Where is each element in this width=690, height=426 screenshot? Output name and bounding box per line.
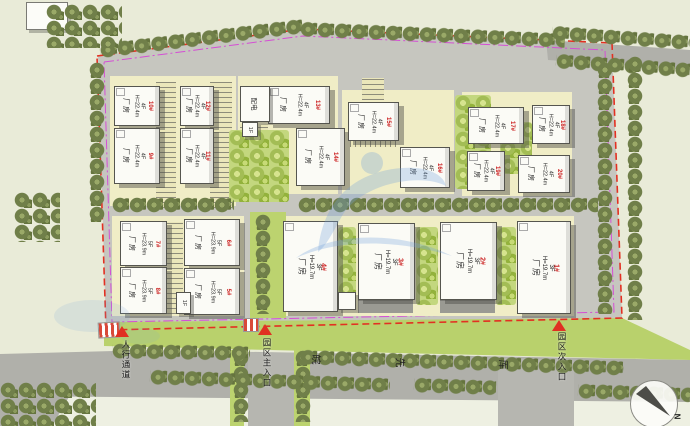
building-number: 16# [436,162,442,172]
building-spec: 3FH=19.7m [383,249,397,274]
annex-floor: 1F [181,300,187,306]
factory-building: 厂房 4FH=22.4m 17# [468,107,524,144]
annex-building [338,292,356,310]
building-number: 10# [147,101,153,111]
building-number: 11# [204,151,210,161]
building-spec: 4FH=22.4m [317,146,330,168]
building-number: 5# [225,288,231,295]
compass-needle [631,381,677,426]
building-name: 厂房 [537,117,547,133]
building-spec: 5FH=23.9m [139,279,152,301]
building-spec: 4FH=22.4m [546,113,559,135]
building-number: 20# [556,169,562,179]
factory-building: 厂房 3FH=19.7m 2# [440,222,497,300]
substation-floor: 1F [247,126,253,132]
building-spec: 4FH=22.4m [481,160,494,182]
factory-building: 厂房 4FH=22.4m 20# [518,155,570,193]
building-name: 厂房 [454,252,465,270]
building-name: 厂房 [303,149,313,165]
building-name: 厂房 [127,236,137,252]
factory-building: 厂房 4FH=22.4m 12# [180,86,214,126]
site-plan-canvas: 厂房 4FH=22.4m 10# 厂房 4FH=22.4m 9# 厂房 4FH=… [0,0,690,426]
road-name-char: 厍 [497,360,512,370]
courtyard-green [229,130,289,202]
building-name: 厂房 [297,258,308,276]
building-number: 9# [147,153,153,160]
building-spec: 4FH=22.4m [133,95,146,117]
tree-row [112,196,234,215]
building-spec: 3FH=19.7m [465,249,479,274]
factory-building: 厂房 4FH=22.4m 15# [348,102,399,141]
tree-column [254,214,273,314]
road-name-char: 先 [394,358,409,368]
tree-row [112,342,250,363]
factory-building: 厂房 4FH=22.4m 11# [180,128,214,184]
factory-building: 厂房 4FH=22.4m 16# [400,147,450,188]
parking-stalls [350,141,396,147]
building-name: 厂房 [472,163,482,179]
building-spec: 5FH=23.9m [208,231,221,253]
main-entrance-label: 园区主入口 [261,338,273,388]
building-spec: 4FH=22.4m [192,95,205,117]
building-name: 厂房 [193,284,203,300]
road-name-char: 皖 [310,355,325,365]
building-spec: 4FH=22.4m [421,156,434,178]
building-name: 厂房 [121,148,131,164]
main-entrance-arrow [258,324,272,335]
tree-cluster [0,382,96,426]
secondary-entrance-label: 园区次入口 [556,332,568,382]
factory-building: 厂房 4FH=22.4m 19# [467,151,505,191]
building-spec: 4FH=22.4m [370,110,383,132]
building-name: 厂房 [477,118,487,134]
building-name: 厂房 [526,166,536,182]
factory-building: 厂房 4FH=22.4m 18# [532,105,570,144]
building-number: 2# [478,257,485,265]
building-spec: 4FH=22.4m [492,114,505,136]
factory-building: 厂房 5FH=23.9m 7# [120,221,167,266]
building-name: 厂房 [408,160,418,176]
building-number: 13# [314,100,320,110]
tree-cluster [46,4,122,48]
factory-building: 厂房 5FH=23.9m 5# [184,268,240,315]
pedestrian-entrance-arrow [115,326,129,337]
tree-column [88,62,107,222]
green-strip [416,227,438,305]
building-name: 厂房 [121,98,131,114]
building-spec: 4FH=22.4m [540,163,553,185]
factory-building: 厂房 4FH=22.4m 13# [268,86,330,124]
factory-building: 厂房 3FH=19.7m 1# [517,221,571,314]
loading-dock [358,300,413,313]
building-spec: 4FH=22.4m [192,145,205,167]
parking-stalls [362,78,384,100]
building-name: 厂房 [193,235,203,251]
building-number: 1# [553,264,560,272]
building-number: 17# [509,120,515,130]
factory-building: 厂房 4FH=22.4m 9# [114,128,160,184]
building-number: 19# [494,166,500,176]
building-number: 6# [225,239,231,246]
building-name: 厂房 [372,253,383,271]
tree-row [414,376,497,398]
tree-cluster [14,192,60,242]
building-number: 4# [320,263,327,271]
tree-column [626,56,645,320]
building-number: 15# [385,116,391,126]
factory-building: 厂房 3FH=19.7m 4# [283,221,338,312]
building-spec: 5FH=23.9m [139,232,152,254]
building-number: 8# [154,287,160,294]
building-number: 7# [154,240,160,247]
factory-building: 厂房 4FH=22.4m 10# [114,86,160,126]
building-name: 厂房 [278,97,288,113]
building-spec: 4FH=22.4m [296,94,309,116]
building-number: 18# [559,119,565,129]
green-strip [496,227,516,305]
factory-building: 厂房 4FH=22.4m 14# [296,128,345,186]
annex-building: 1F [176,292,191,314]
building-spec: 3FH=19.7m [307,254,321,279]
building-number: 14# [332,152,338,162]
north-arrow-compass [630,380,678,426]
building-name: 厂房 [127,283,137,299]
substation-annex: 1F [242,122,258,137]
building-number: 12# [204,101,210,111]
building-name: 厂房 [356,114,366,130]
substation-building: 配电 [240,86,270,122]
entrance-crosswalk [243,318,259,332]
factory-building: 厂房 3FH=19.7m 3# [358,223,415,300]
factory-building: 厂房 5FH=23.9m 6# [184,219,240,266]
pedestrian-entrance-label: 人行通道 [120,340,132,380]
building-spec: 5FH=23.9m [208,280,221,302]
loading-dock [440,300,495,313]
tree-row [298,196,598,215]
substation-name: 配电 [250,98,260,111]
factory-building: 厂房 5FH=23.9m 8# [120,267,167,314]
compass-north-label: N [672,414,681,420]
secondary-entrance-arrow [552,320,566,331]
building-number: 3# [396,258,403,266]
building-spec: 4FH=22.4m [133,145,146,167]
tree-column [596,62,615,314]
